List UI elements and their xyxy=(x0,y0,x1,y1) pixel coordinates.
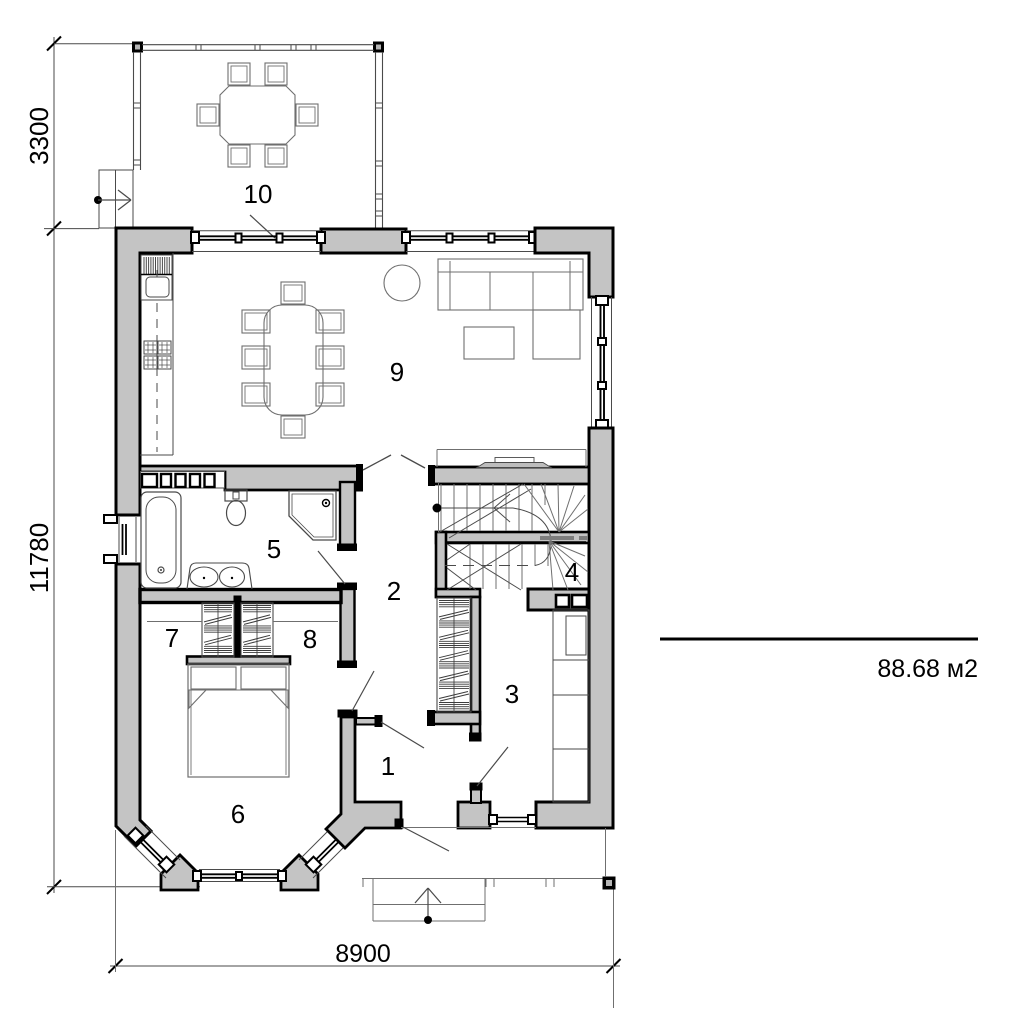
svg-text:3: 3 xyxy=(505,679,519,709)
svg-text:1: 1 xyxy=(381,751,395,781)
svg-text:5: 5 xyxy=(267,534,281,564)
svg-text:88.68 м2: 88.68 м2 xyxy=(877,655,978,683)
svg-text:2: 2 xyxy=(387,576,401,606)
svg-text:8: 8 xyxy=(303,624,317,654)
svg-text:6: 6 xyxy=(231,799,245,829)
svg-text:4: 4 xyxy=(565,557,579,587)
svg-text:10: 10 xyxy=(244,179,273,209)
svg-text:9: 9 xyxy=(390,357,404,387)
svg-text:3300: 3300 xyxy=(24,107,54,165)
svg-text:11780: 11780 xyxy=(24,523,54,593)
svg-text:7: 7 xyxy=(165,623,179,653)
svg-text:8900: 8900 xyxy=(335,940,391,968)
